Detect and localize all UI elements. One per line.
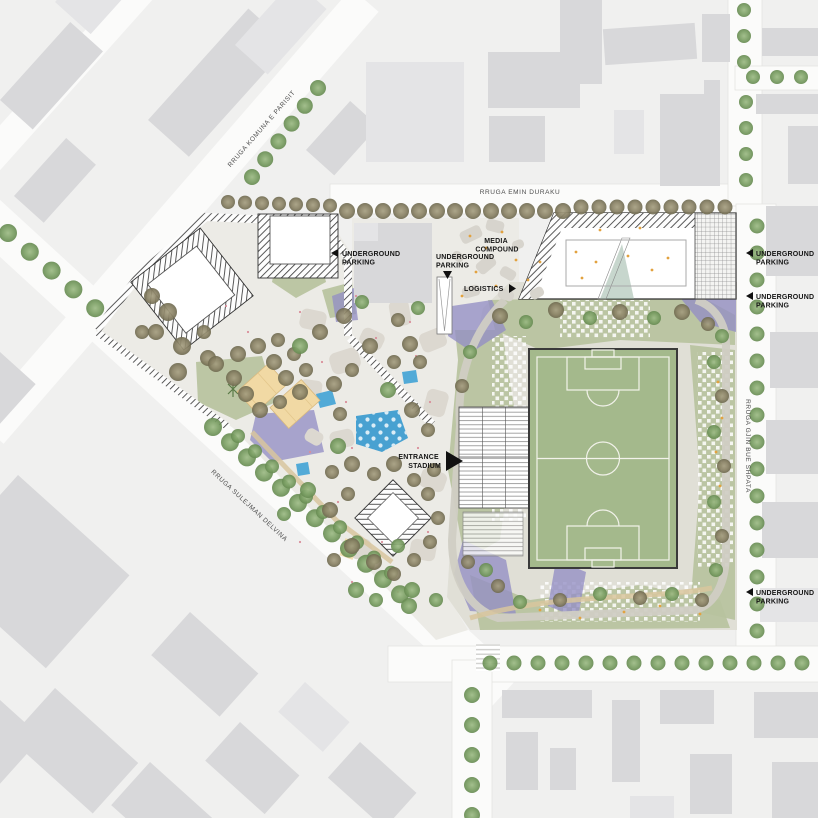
tree-icon: [238, 386, 254, 402]
tree-icon: [464, 747, 480, 763]
tree-icon: [367, 467, 381, 481]
tree-icon: [519, 315, 533, 329]
scatter-dot: [429, 401, 431, 403]
tree-icon: [592, 200, 607, 215]
scatter-dot: [417, 447, 419, 449]
scatter-dot: [321, 361, 323, 363]
tree-icon: [646, 200, 661, 215]
tree-icon: [310, 80, 326, 96]
tree-icon: [277, 507, 291, 521]
tree-icon: [750, 570, 765, 585]
tree-icon: [322, 502, 338, 518]
tree-icon: [345, 363, 359, 377]
tree-icon: [265, 459, 279, 473]
scatter-dot: [355, 295, 357, 297]
tree-icon: [357, 203, 373, 219]
tree-icon: [238, 196, 252, 210]
scatter-dot: [659, 605, 662, 608]
grandstand: [459, 407, 529, 556]
tree-icon: [647, 311, 661, 325]
tree-icon: [344, 538, 360, 554]
tree-icon: [750, 624, 765, 639]
tree-icon: [327, 553, 341, 567]
tree-icon: [447, 203, 463, 219]
tree-icon: [737, 3, 751, 17]
scatter-dot: [599, 229, 602, 232]
tree-icon: [375, 203, 391, 219]
tree-icon: [431, 511, 445, 525]
tree-icon: [306, 198, 320, 212]
tree-icon: [665, 587, 679, 601]
tree-icon: [483, 203, 499, 219]
tree-icon: [555, 656, 570, 671]
tree-icon: [266, 354, 282, 370]
tree-icon: [739, 147, 753, 161]
scatter-dot: [699, 613, 702, 616]
tree-icon: [407, 553, 421, 567]
scatter-dot: [717, 381, 720, 384]
tree-icon: [771, 656, 786, 671]
tree-icon: [717, 459, 731, 473]
tree-icon: [230, 346, 246, 362]
tree-icon: [555, 203, 571, 219]
tree-icon: [519, 203, 535, 219]
tree-icon: [362, 338, 378, 354]
tree-icon: [221, 195, 235, 209]
tree-icon: [794, 70, 808, 84]
tree-icon: [391, 313, 405, 327]
tree-icon: [612, 304, 628, 320]
site-plan-page: RRUGA KOMUNA E PARISIT RRUGA EMIN DURAKU…: [0, 0, 818, 818]
tree-icon: [159, 303, 177, 321]
tree-icon: [278, 370, 294, 386]
tree-icon: [746, 70, 760, 84]
tree-icon: [387, 355, 401, 369]
tree-icon: [323, 199, 337, 213]
tree-icon: [348, 582, 364, 598]
tree-icon: [282, 475, 296, 489]
tree-icon: [339, 203, 355, 219]
tree-icon: [513, 595, 527, 609]
tree-icon: [271, 333, 285, 347]
scatter-dot: [461, 295, 464, 298]
tree-icon: [664, 200, 679, 215]
tree-icon: [707, 495, 721, 509]
tree-icon: [326, 376, 342, 392]
tree-icon: [366, 554, 382, 570]
tree-icon: [750, 543, 765, 558]
tree-icon: [750, 219, 765, 234]
tree-icon: [674, 304, 690, 320]
tree-icon: [610, 200, 625, 215]
scatter-dot: [309, 451, 311, 453]
tree-icon: [135, 325, 149, 339]
tree-icon: [491, 579, 505, 593]
tree-icon: [387, 567, 401, 581]
scatter-dot: [351, 447, 353, 449]
tree-icon: [464, 687, 480, 703]
stadium-pitch: [529, 349, 677, 568]
tree-icon: [380, 382, 396, 398]
tree-icon: [273, 395, 287, 409]
tree-icon: [391, 539, 405, 553]
tree-icon: [548, 302, 564, 318]
tree-icon: [750, 327, 765, 342]
tree-icon: [250, 338, 266, 354]
tree-icon: [739, 121, 753, 135]
tree-icon: [341, 487, 355, 501]
tree-icon: [421, 487, 435, 501]
scatter-dot: [527, 279, 530, 282]
tree-icon: [715, 389, 729, 403]
tree-icon: [252, 402, 268, 418]
scatter-dot: [623, 611, 626, 614]
tree-icon: [248, 444, 262, 458]
tree-icon: [628, 200, 643, 215]
tree-icon: [64, 280, 82, 298]
tree-icon: [330, 438, 346, 454]
scatter-dot: [595, 261, 598, 264]
tree-icon: [404, 582, 420, 598]
tree-icon: [169, 363, 187, 381]
tree-icon: [299, 363, 313, 377]
site-plan-map: RRUGA KOMUNA E PARISIT RRUGA EMIN DURAKU…: [0, 0, 818, 818]
tree-icon: [86, 299, 104, 317]
tree-icon: [401, 598, 417, 614]
tree-icon: [455, 379, 469, 393]
tree-icon: [333, 407, 347, 421]
scatter-dot: [715, 451, 718, 454]
scatter-dot: [337, 501, 339, 503]
tree-icon: [627, 656, 642, 671]
tree-icon: [718, 200, 733, 215]
tree-icon: [429, 203, 445, 219]
tree-icon: [492, 308, 508, 324]
scatter-dot: [667, 257, 670, 260]
tree-icon: [272, 197, 286, 211]
tree-icon: [270, 133, 286, 149]
tree-icon: [292, 338, 308, 354]
scatter-dot: [651, 269, 654, 272]
parking-ramp: [437, 277, 452, 334]
tree-icon: [402, 336, 418, 352]
tree-icon: [312, 324, 328, 340]
tree-icon: [300, 482, 316, 498]
tree-icon: [289, 197, 303, 211]
tree-icon: [699, 656, 714, 671]
scatter-dot: [579, 617, 582, 620]
tree-icon: [737, 55, 751, 69]
tree-icon: [208, 356, 224, 372]
scatter-dot: [409, 321, 411, 323]
tree-icon: [226, 370, 242, 386]
tree-icon: [464, 777, 480, 793]
tree-icon: [479, 563, 493, 577]
scatter-dot: [639, 227, 642, 230]
tree-icon: [715, 529, 729, 543]
tree-icon: [737, 29, 751, 43]
tree-icon: [750, 381, 765, 396]
tree-icon: [292, 384, 308, 400]
tree-icon: [707, 425, 721, 439]
logistics-label: LOGISTICS: [464, 286, 504, 293]
tree-icon: [553, 593, 567, 607]
tree-icon: [231, 429, 245, 443]
tree-icon: [700, 200, 715, 215]
scatter-dot: [501, 231, 504, 234]
tree-icon: [297, 98, 313, 114]
tree-icon: [465, 203, 481, 219]
scatter-dot: [225, 305, 227, 307]
tree-icon: [651, 656, 666, 671]
scatter-dot: [299, 311, 301, 313]
scatter-dot: [575, 251, 578, 254]
tree-icon: [593, 587, 607, 601]
tree-icon: [739, 173, 753, 187]
tree-icon: [531, 656, 546, 671]
tree-icon: [355, 295, 369, 309]
scatter-dot: [299, 541, 301, 543]
tree-icon: [701, 317, 715, 331]
scatter-dot: [345, 401, 347, 403]
scatter-dot: [581, 277, 584, 280]
pavilion-building-b: [258, 214, 338, 278]
tree-icon: [407, 473, 421, 487]
tree-icon: [715, 329, 729, 343]
scatter-dot: [247, 331, 249, 333]
tree-icon: [333, 520, 347, 534]
scatter-dot: [627, 255, 630, 258]
tree-icon: [173, 337, 191, 355]
scatter-dot: [475, 271, 478, 274]
tree-icon: [750, 273, 765, 288]
tree-icon: [750, 516, 765, 531]
tree-icon: [257, 151, 273, 167]
tree-icon: [404, 402, 420, 418]
tree-icon: [463, 345, 477, 359]
tree-icon: [411, 301, 425, 315]
scatter-dot: [719, 485, 722, 488]
tree-icon: [707, 355, 721, 369]
tree-icon: [583, 311, 597, 325]
tree-icon: [244, 169, 260, 185]
tree-icon: [747, 656, 762, 671]
tree-icon: [43, 262, 61, 280]
tree-icon: [682, 200, 697, 215]
tree-icon: [461, 555, 475, 569]
tree-icon: [795, 656, 810, 671]
tree-icon: [695, 593, 709, 607]
scatter-dot: [515, 259, 518, 262]
scatter-dot: [721, 417, 724, 420]
tree-icon: [675, 656, 690, 671]
tree-icon: [344, 456, 360, 472]
tree-icon: [483, 656, 498, 671]
street-label-emin-duraku: RRUGA EMIN DURAKU: [480, 189, 561, 196]
scatter-dot: [375, 337, 377, 339]
tree-icon: [144, 288, 160, 304]
tree-icon: [633, 591, 647, 605]
tree-icon: [423, 535, 437, 549]
scatter-dot: [381, 541, 383, 543]
scatter-dot: [427, 531, 429, 533]
tree-icon: [204, 418, 222, 436]
tree-icon: [429, 593, 443, 607]
street-label-gjin-bue-shpata: RRUGA GJIN BUE SHPATA: [744, 399, 751, 493]
tree-icon: [750, 354, 765, 369]
tree-icon: [325, 465, 339, 479]
tree-icon: [421, 423, 435, 437]
tree-icon: [501, 203, 517, 219]
tree-icon: [393, 203, 409, 219]
tree-icon: [537, 203, 553, 219]
tree-icon: [723, 656, 738, 671]
tree-icon: [255, 196, 269, 210]
tree-icon: [284, 116, 300, 132]
tree-icon: [507, 656, 522, 671]
tree-icon: [579, 656, 594, 671]
tree-icon: [464, 717, 480, 733]
tree-icon: [148, 324, 164, 340]
scatter-dot: [539, 261, 542, 264]
tree-icon: [369, 593, 383, 607]
tree-icon: [336, 308, 352, 324]
tree-icon: [413, 355, 427, 369]
tree-icon: [21, 243, 39, 261]
tree-icon: [197, 325, 211, 339]
tree-icon: [770, 70, 784, 84]
tree-icon: [574, 200, 589, 215]
tree-icon: [709, 563, 723, 577]
tree-icon: [603, 656, 618, 671]
scatter-dot: [469, 235, 472, 238]
tree-icon: [411, 203, 427, 219]
scatter-dot: [539, 609, 542, 612]
tree-icon: [739, 95, 753, 109]
